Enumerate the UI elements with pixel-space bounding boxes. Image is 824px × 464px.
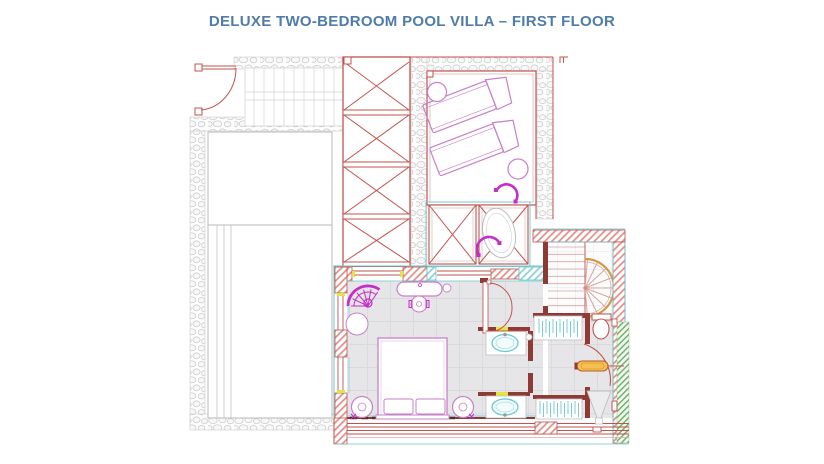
side-table <box>428 83 447 102</box>
pillow <box>384 399 413 414</box>
stair-floor <box>548 242 613 313</box>
door-swing-arc <box>201 68 236 110</box>
shower-control <box>612 401 617 411</box>
wall-accessory <box>443 284 451 292</box>
landscape-strip <box>617 322 629 443</box>
wall-pier <box>335 267 347 293</box>
vanity-bottom <box>486 396 526 418</box>
accessory <box>593 427 601 432</box>
survey-mark <box>560 57 568 63</box>
accessory <box>612 319 617 326</box>
accessory <box>526 334 532 340</box>
wardrobe-bottom <box>536 399 582 419</box>
vanity-top <box>486 331 532 355</box>
boardwalk-steps <box>245 68 344 126</box>
entrance-door <box>195 64 236 115</box>
wardrobe-top <box>534 316 582 340</box>
wall-pier <box>403 267 427 281</box>
faucet <box>503 413 507 417</box>
floor-plan <box>0 0 824 464</box>
faucet <box>503 333 507 337</box>
swimming-pool <box>208 132 332 418</box>
bed <box>376 338 449 419</box>
headboard <box>376 415 449 419</box>
wall-pier <box>335 330 347 357</box>
pillow <box>416 399 445 414</box>
stair-newel <box>583 286 587 290</box>
roof-terrace <box>422 71 536 205</box>
side-table <box>508 159 528 179</box>
round-table <box>346 313 368 335</box>
pergola-trellis <box>343 57 410 267</box>
